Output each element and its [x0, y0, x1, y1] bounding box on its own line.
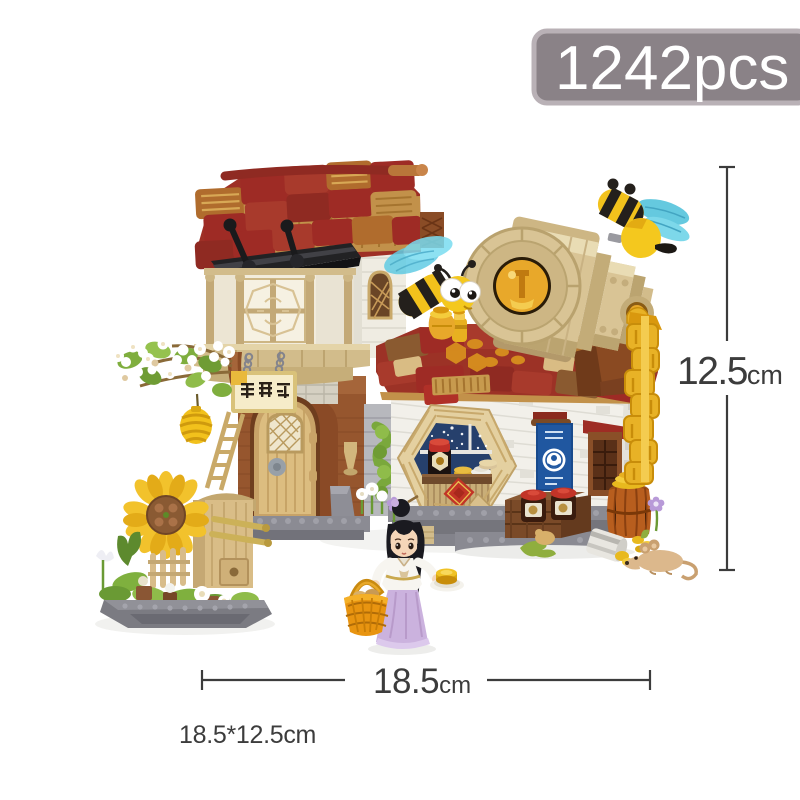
svg-text:18.5*12.5cm: 18.5*12.5cm [179, 721, 316, 749]
svg-text:1242pcs: 1242pcs [555, 34, 789, 103]
svg-text:18.5cm: 18.5cm [373, 662, 471, 701]
svg-text:12.5cm: 12.5cm [677, 350, 783, 393]
